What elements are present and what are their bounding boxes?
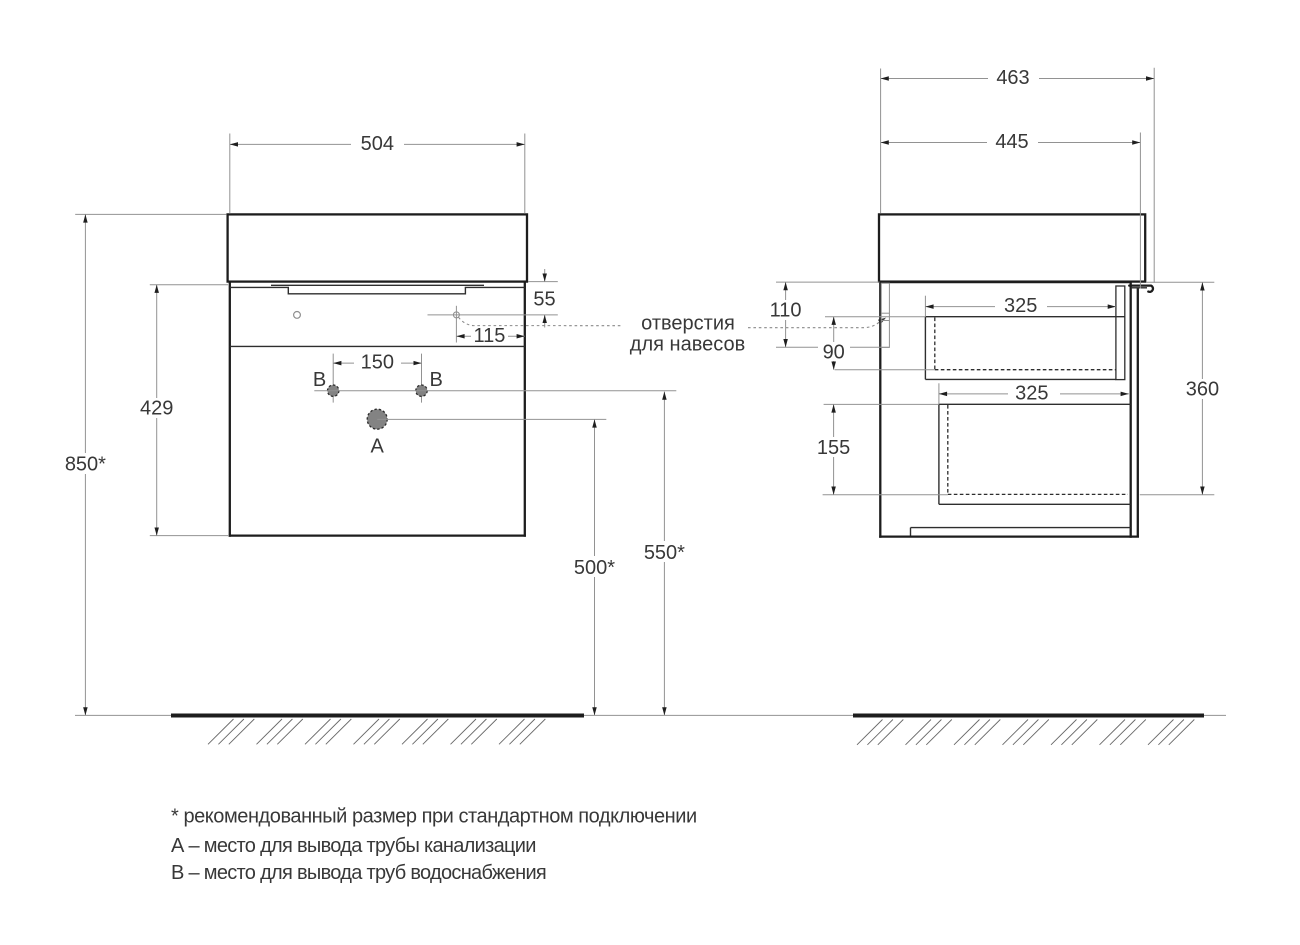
svg-text:90: 90 xyxy=(823,341,845,363)
svg-text:155: 155 xyxy=(817,437,850,459)
svg-text:В – место для вывода труб водо: В – место для вывода труб водоснабжения xyxy=(171,862,546,884)
svg-text:55: 55 xyxy=(533,289,555,311)
svg-text:150: 150 xyxy=(361,352,394,374)
svg-text:360: 360 xyxy=(1186,378,1219,400)
svg-text:* рекомендованный размер при с: * рекомендованный размер при стандартном… xyxy=(171,806,697,828)
svg-text:110: 110 xyxy=(770,300,802,322)
svg-text:отверстия: отверстия xyxy=(641,313,735,335)
svg-text:для навесов: для навесов xyxy=(630,334,745,356)
svg-text:325: 325 xyxy=(1015,382,1048,404)
svg-text:B: B xyxy=(430,369,443,391)
svg-text:325: 325 xyxy=(1004,295,1037,317)
svg-text:504: 504 xyxy=(361,133,394,155)
svg-text:463: 463 xyxy=(996,67,1029,89)
svg-text:445: 445 xyxy=(995,131,1028,153)
svg-text:850*: 850* xyxy=(65,454,106,476)
svg-text:A: A xyxy=(371,435,385,457)
svg-text:А – место для вывода трубы кан: А – место для вывода трубы канализации xyxy=(171,835,536,857)
svg-text:550*: 550* xyxy=(644,542,685,564)
svg-text:B: B xyxy=(313,369,326,391)
svg-text:115: 115 xyxy=(474,325,506,347)
svg-text:429: 429 xyxy=(140,398,173,420)
svg-text:500*: 500* xyxy=(574,557,615,579)
